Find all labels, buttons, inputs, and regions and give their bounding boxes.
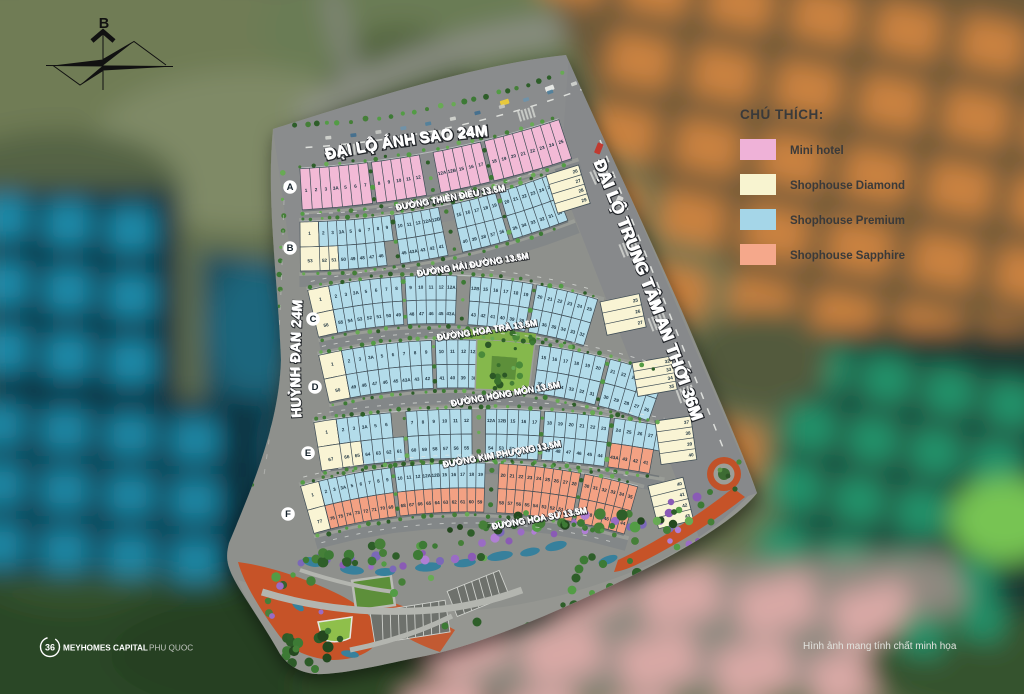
svg-text:10: 10: [439, 349, 445, 354]
svg-text:MEYHOMES CAPITAL: MEYHOMES CAPITAL: [63, 644, 148, 653]
svg-text:D: D: [312, 382, 319, 393]
svg-text:49: 49: [350, 256, 356, 261]
svg-text:19: 19: [478, 472, 484, 477]
svg-text:12A: 12A: [487, 418, 496, 423]
svg-text:50: 50: [341, 257, 347, 262]
svg-text:39: 39: [461, 375, 467, 380]
svg-text:46: 46: [378, 253, 384, 259]
svg-text:22: 22: [518, 474, 524, 479]
svg-text:62: 62: [452, 500, 458, 505]
svg-text:3A: 3A: [339, 229, 346, 234]
svg-text:56: 56: [454, 446, 460, 451]
svg-text:46: 46: [576, 451, 582, 457]
svg-text:59: 59: [477, 499, 483, 504]
svg-text:47: 47: [419, 311, 425, 316]
svg-text:21: 21: [579, 423, 585, 429]
svg-text:59: 59: [422, 447, 428, 452]
svg-text:43: 43: [471, 312, 477, 317]
svg-text:47: 47: [566, 449, 572, 455]
svg-text:20: 20: [500, 473, 506, 478]
svg-text:36: 36: [45, 643, 55, 653]
svg-text:58: 58: [499, 500, 505, 505]
svg-text:HUỲNH ĐAN 24M: HUỲNH ĐAN 24M: [286, 299, 305, 418]
svg-text:15: 15: [483, 287, 489, 292]
svg-text:65: 65: [426, 501, 432, 506]
svg-text:PHU QUOC: PHU QUOC: [149, 644, 193, 653]
svg-text:60: 60: [469, 499, 475, 504]
svg-text:40: 40: [450, 375, 456, 380]
svg-text:49: 49: [396, 312, 402, 317]
svg-text:11: 11: [429, 285, 434, 290]
svg-text:24: 24: [536, 476, 542, 482]
svg-text:57: 57: [443, 446, 449, 451]
svg-text:12: 12: [464, 418, 470, 423]
svg-text:11: 11: [450, 349, 455, 354]
svg-text:F: F: [285, 509, 291, 520]
svg-text:54: 54: [533, 503, 539, 509]
svg-text:18: 18: [469, 472, 475, 477]
svg-text:12B: 12B: [498, 418, 507, 423]
svg-text:23: 23: [527, 475, 533, 481]
svg-text:Shophouse Diamond: Shophouse Diamond: [790, 180, 905, 192]
svg-text:55: 55: [464, 445, 470, 450]
svg-text:18: 18: [547, 420, 553, 425]
svg-text:15: 15: [510, 419, 516, 424]
svg-text:60: 60: [411, 447, 417, 452]
svg-text:48: 48: [359, 255, 365, 260]
svg-text:10: 10: [397, 475, 403, 481]
svg-text:58: 58: [432, 446, 438, 451]
svg-text:64: 64: [365, 451, 371, 457]
svg-text:10: 10: [418, 285, 424, 290]
svg-text:43A: 43A: [446, 311, 455, 316]
svg-text:22: 22: [590, 424, 596, 430]
svg-text:17: 17: [460, 472, 466, 477]
svg-text:12: 12: [439, 285, 445, 290]
svg-text:62: 62: [386, 449, 392, 454]
svg-text:12B: 12B: [471, 286, 480, 292]
svg-text:B: B: [99, 16, 109, 32]
svg-text:Shophouse Sapphire: Shophouse Sapphire: [790, 250, 905, 262]
svg-text:16: 16: [451, 472, 457, 477]
svg-text:63: 63: [443, 500, 449, 505]
svg-text:10: 10: [442, 418, 448, 423]
svg-text:Mini hotel: Mini hotel: [790, 145, 844, 157]
svg-text:46: 46: [429, 311, 435, 316]
svg-text:12: 12: [415, 474, 421, 479]
svg-text:E: E: [305, 448, 311, 459]
svg-text:C: C: [310, 314, 317, 325]
svg-text:61: 61: [397, 448, 403, 453]
svg-text:17: 17: [532, 419, 538, 424]
svg-text:43A: 43A: [402, 377, 412, 383]
svg-text:47: 47: [369, 254, 375, 260]
svg-text:41: 41: [439, 376, 445, 381]
svg-text:64: 64: [435, 500, 441, 505]
svg-text:19: 19: [558, 421, 564, 426]
svg-text:45: 45: [393, 378, 399, 384]
svg-text:16: 16: [521, 419, 527, 424]
svg-text:12A: 12A: [447, 285, 456, 290]
svg-text:15: 15: [442, 472, 448, 477]
svg-text:45: 45: [587, 452, 593, 458]
svg-text:50: 50: [386, 313, 392, 318]
svg-text:55: 55: [524, 502, 530, 508]
svg-text:67: 67: [409, 502, 415, 508]
svg-text:Shophouse Premium: Shophouse Premium: [790, 215, 905, 227]
svg-text:12: 12: [461, 349, 467, 354]
svg-text:11: 11: [453, 418, 458, 423]
svg-text:68: 68: [400, 503, 406, 509]
svg-text:CHÚ THÍCH:: CHÚ THÍCH:: [740, 107, 824, 122]
svg-text:54: 54: [488, 446, 494, 451]
svg-text:57: 57: [507, 501, 513, 506]
svg-text:63: 63: [376, 450, 382, 456]
svg-text:52: 52: [322, 258, 328, 263]
svg-text:45: 45: [438, 311, 444, 316]
svg-text:43: 43: [414, 377, 420, 382]
svg-text:B: B: [287, 243, 294, 254]
svg-text:A: A: [287, 182, 294, 193]
svg-text:41: 41: [490, 314, 496, 320]
svg-text:20: 20: [568, 422, 574, 428]
svg-text:48: 48: [409, 311, 415, 316]
svg-text:56: 56: [516, 501, 522, 506]
svg-text:16: 16: [493, 288, 499, 294]
svg-text:51: 51: [331, 257, 337, 262]
svg-text:42: 42: [480, 313, 486, 318]
svg-text:Hình ảnh mang tính chất minh h: Hình ảnh mang tính chất minh họa: [803, 640, 957, 652]
svg-text:53: 53: [307, 258, 313, 263]
svg-text:51: 51: [376, 314, 382, 320]
svg-text:66: 66: [417, 501, 423, 506]
svg-text:61: 61: [460, 499, 466, 504]
svg-text:21: 21: [509, 473, 515, 478]
svg-text:11: 11: [406, 475, 412, 480]
svg-text:12B: 12B: [431, 473, 440, 478]
svg-text:42: 42: [425, 376, 431, 381]
